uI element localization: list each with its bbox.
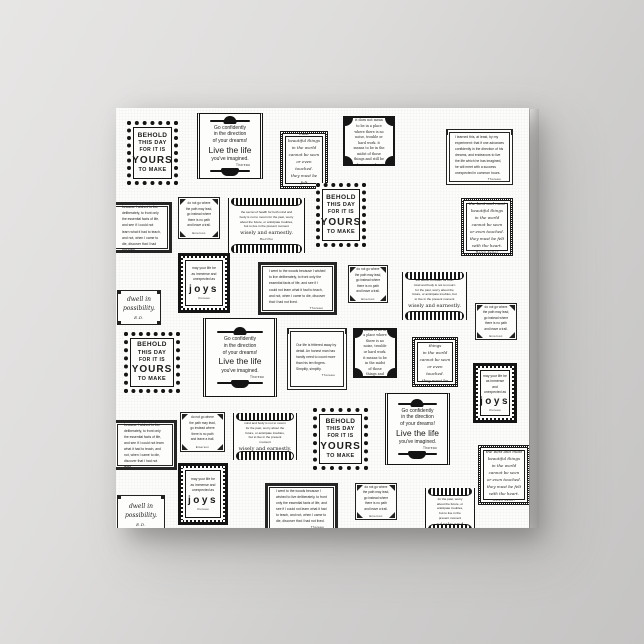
corner-triangle-icon [380,295,386,301]
quote-text: Go confidentlyin the directionof your dr… [213,125,248,145]
quote-attribution: thoreau [197,507,209,511]
quote-frame-plain: I went to the woods because I wished to … [116,420,177,470]
quote-text: the secret of health for both mind and b… [233,210,300,230]
corner-triangle-icon [350,267,356,273]
quote-text: the best and mostbeautiful thingsin the … [486,448,522,497]
engraved-band-icon [231,198,302,206]
quote-frame-buddha: the secret of health for both mind and b… [233,413,297,460]
quote-text: the best and mostbeautiful thingsin the … [419,337,451,387]
corner-triangle-icon [217,444,223,450]
engraved-band-icon [236,451,294,460]
quote-text-large: Live the life [219,357,262,366]
corner-triangle-icon [357,512,363,518]
quote-frame-script: the best and mostbeautiful thingsin the … [478,445,529,505]
quote-frame-square: do not go wherethe path may lead,go inst… [180,412,225,452]
quote-frame-script: the best and mostbeautiful thingsin the … [280,131,328,189]
quote-frame-square: do not go wherethe path may lead,go inst… [178,197,220,239]
quote-text-large: joys [188,495,218,506]
corner-post-icon [446,129,448,135]
corner-post-icon [511,129,513,135]
quote-attribution: Emerson [489,334,502,338]
quote-frame-joys: may your life beas immense andunexpected… [178,463,228,525]
engraved-band-icon [405,272,464,280]
quote-frame-plain: I went to the woods because I wished to … [116,202,172,253]
corner-triangle-icon [477,332,483,338]
quote-frame-behold: BEHOLDTHIS DAYFOR IT ISYOURSTO MAKE [124,332,180,393]
corner-triangle-icon [389,512,395,518]
quote-text: BEHOLDTHIS DAYFOR IT ISYOURSTO MAKE [320,418,361,460]
quote-attribution: Emerson [369,514,382,518]
corner-triangle-icon [509,332,515,338]
quote-frame-script: the best and mostbeautiful thingsin the … [412,337,458,387]
quote-text: I learned this, at least, by my experime… [450,133,509,178]
quote-frame-thin: Our life is frittered away by detail. An… [287,328,347,390]
quote-text: the best and mostbeautiful thingsin the … [287,131,321,189]
corner-triangle-icon [180,231,186,237]
quote-frame-buddha: the secret of health for both mind and b… [402,272,467,320]
quote-attribution: Thoreau [310,306,323,310]
quote-frame-behold: BEHOLDTHIS DAYFOR IT ISYOURSTO MAKE [127,121,178,185]
quote-attribution: E.D. [134,315,144,320]
quote-text-emphasis: wisely and earnestly. [408,303,461,309]
quote-text-large: joys [480,396,510,407]
quote-text: Our life is frittered away by detail. An… [291,341,343,374]
corner-triangle-icon [182,414,188,420]
quote-text: may your life beas immense andunexpected… [483,374,507,396]
corner-triangle-icon [380,267,386,273]
quote-frame-plain: I went to the woods because I wished to … [265,483,338,528]
quote-frame-dwell: dwell inpossibility. E.D. [117,495,165,528]
quote-text-emphasis: wisely and earnestly. [240,230,293,236]
quote-frame-behold: BEHOLDTHIS DAYFOR IT ISYOURSTO MAKE [316,183,366,247]
corner-square-icon [117,321,121,325]
corner-triangle-icon [182,444,188,450]
quote-text: may your life beas immense andunexpected… [192,266,217,282]
quote-text: I went to the woods because I wished to … [271,487,332,526]
engraved-band-icon [236,413,294,421]
bottom-flourish-ornament-icon [208,167,252,176]
quote-text-large: joys [189,284,219,295]
corner-triangle-icon [180,199,186,205]
quote-text: I went to the woods because I wished to … [119,420,171,470]
quote-text: do not go wherethe path may lead,go inst… [355,267,381,294]
top-flourish-ornament-icon [215,327,266,336]
quote-text: dwell inpossibility. [125,502,157,520]
corner-triangle-icon [350,295,356,301]
engraved-band-icon [231,244,302,253]
quote-attribution: Thoreau [488,177,501,181]
quote-text: you've imagined. [399,439,436,445]
quote-text: I went to the woods because I wished to … [117,202,166,253]
quote-text: I went to the woods because I wished to … [264,267,331,306]
bottom-flourish-ornament-icon [215,379,266,388]
quote-text-large: Live the life [209,146,252,155]
quote-frame-buddha: the secret of health for both mind and b… [425,488,475,528]
canvas-side-edge [529,109,539,528]
quote-text: BEHOLDTHIS DAYFOR IT ISYOURSTO MAKE [132,341,173,383]
corner-square-icon [117,290,121,294]
quote-frame-plain: I went to the woods because I wished to … [258,262,337,315]
quote-text: do not go wherethe path may lead,go inst… [186,201,212,228]
quote-text: it does not mean to be in a place where … [347,117,391,166]
quote-frame-joys: may your life beas immense andunexpected… [473,363,517,423]
corner-triangle-icon [509,305,515,311]
quote-frame-peace: peace. it does not mean to be in a place… [343,116,395,166]
quote-text: the secret of health for both mind and b… [407,278,462,303]
corner-triangle-icon [477,305,483,311]
quote-text: do not go wherethe path may lead,go inst… [189,415,215,442]
quote-frame-square: do not go wherethe path may lead,go inst… [348,265,388,303]
quote-frame-square: do not go wherethe path may lead,go inst… [475,303,517,340]
corner-triangle-icon [217,414,223,420]
quote-text: BEHOLDTHIS DAYFOR IT ISYOURSTO MAKE [321,194,362,236]
top-flourish-ornament-icon [396,399,439,408]
quote-frame-pattern: BEHOLDTHIS DAYFOR IT ISYOURSTO MAKE Go c… [116,108,529,528]
top-flourish-ornament-icon [208,116,252,125]
corner-square-icon [117,495,121,499]
engraved-band-icon [405,311,464,320]
corner-triangle-icon [212,231,218,237]
quote-text: dwell inpossibility. [123,295,155,313]
corner-triangle-icon [357,485,363,491]
corner-post-icon [287,328,289,334]
quote-frame-joys: may your life beas immense andunexpected… [178,253,230,313]
quote-frame-script: the best and mostbeautiful thingsin the … [461,198,513,256]
quote-attribution: Helen Keller [493,498,516,502]
quote-frame-dwell: dwell inpossibility. E.D. [117,290,161,325]
quote-text: may your life beas immense andunexpected… [191,477,216,493]
quote-text: do not go wherethe path may lead,go inst… [483,305,509,332]
corner-square-icon [161,495,165,499]
quote-text: Go confidentlyin the directionof your dr… [400,408,435,428]
quote-text: BEHOLDTHIS DAYFOR IT ISYOURSTO MAKE [132,132,173,174]
product-photo-background: BEHOLDTHIS DAYFOR IT ISYOURSTO MAKE Go c… [0,0,644,644]
quote-attribution: Buddha [260,237,274,241]
quote-text: do not go wherethe path may lead,go inst… [363,485,389,512]
quote-frame-behold: BEHOLDTHIS DAYFOR IT ISYOURSTO MAKE [313,408,368,470]
quote-attribution: Emerson [196,445,209,449]
quote-attribution: thoreau [489,408,501,412]
quote-attribution: Emerson [361,297,374,301]
quote-frame-buddha: the secret of health for both mind and b… [228,198,305,253]
quote-frame-go-confidently: Go confidentlyin the directionof your dr… [197,113,263,179]
corner-triangle-icon [212,199,218,205]
quote-text: you've imagined. [221,368,258,374]
quote-frame-square: do not go wherethe path may lead,go inst… [355,483,397,520]
corner-square-icon [157,290,161,294]
quote-frame-thin: I learned this, at least, by my experime… [446,129,513,185]
engraved-band-icon [428,524,472,528]
quote-attribution: thoreau [198,296,210,300]
quote-frame-peace: peace. it does not mean to be in a place… [353,328,397,378]
quote-attribution: Emerson [192,231,205,235]
quote-text: you've imagined. [211,156,248,162]
quote-attribution: Thoreau [322,373,335,377]
engraved-band-icon [428,488,472,496]
quote-attribution: Helen Keller [476,250,499,254]
corner-triangle-icon [389,485,395,491]
canvas-print: BEHOLDTHIS DAYFOR IT ISYOURSTO MAKE Go c… [116,108,529,528]
quote-attribution: Thoreau [311,525,324,528]
quote-frame-go-confidently: Go confidentlyin the directionof your dr… [203,318,277,397]
quote-text: the best and mostbeautiful thingsin the … [469,200,505,249]
corner-square-icon [157,321,161,325]
quote-frame-go-confidently: Go confidentlyin the directionof your dr… [385,393,450,465]
quote-text-large: Live the life [396,429,439,438]
quote-attribution: E.D. [136,522,146,527]
bottom-flourish-ornament-icon [396,450,439,459]
quote-text: Go confidentlyin the directionof your dr… [223,336,258,356]
corner-post-icon [345,328,347,334]
